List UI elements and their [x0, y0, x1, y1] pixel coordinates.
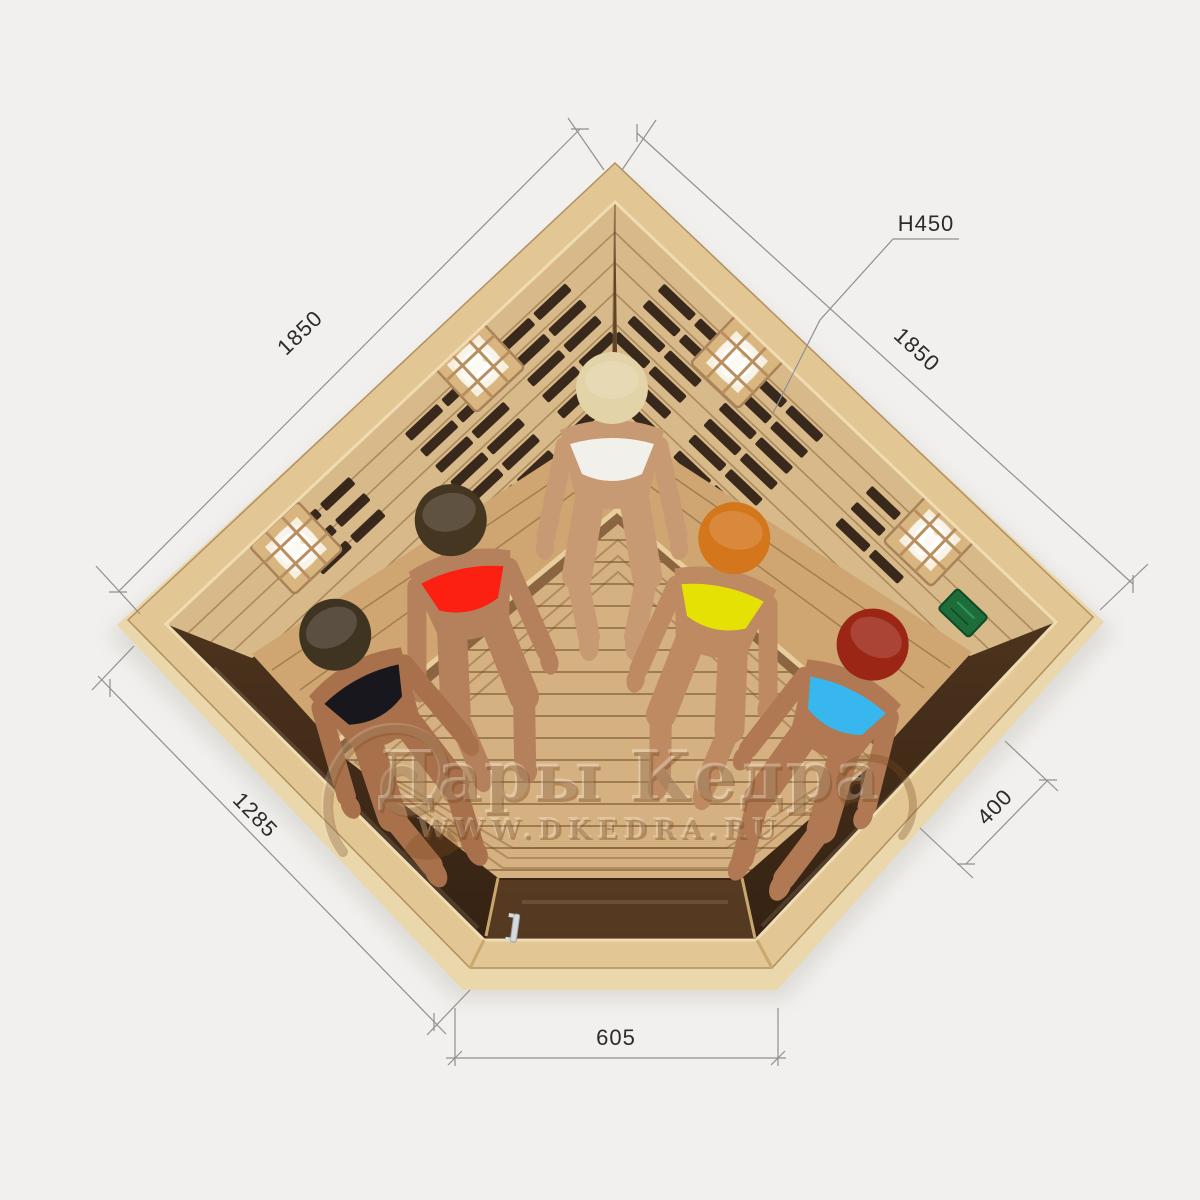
watermark-brand: Дары Кедра	[377, 739, 883, 819]
dimension-label: 605	[596, 1025, 636, 1050]
dimension-label: H450	[898, 211, 955, 236]
render-canvas: Дары Кедра Дары Кедра WWW.DKEDRA.RU WWW.…	[0, 0, 1200, 1200]
sauna-dimension-render: Дары Кедра Дары Кедра WWW.DKEDRA.RU WWW.…	[0, 0, 1200, 1200]
floor-through-glass	[485, 880, 755, 938]
watermark-url: WWW.DKEDRA.RU	[418, 816, 783, 847]
